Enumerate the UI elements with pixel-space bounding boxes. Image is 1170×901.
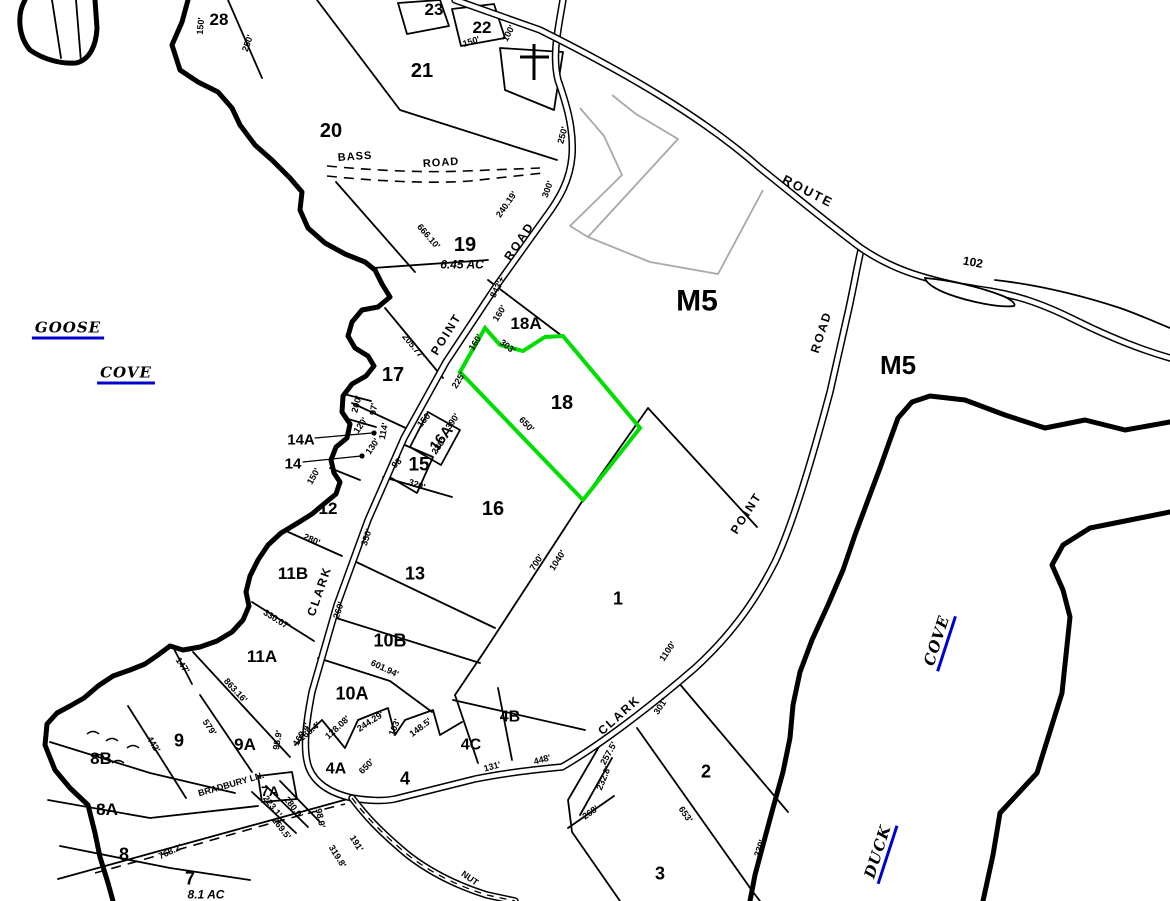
building-dot-14a	[371, 430, 376, 435]
measurement-label-120-: 120'	[351, 415, 369, 435]
road-label-bass: BASS	[337, 150, 372, 164]
measurement-label-147-: 147'	[174, 655, 192, 675]
parcel-label-18: 18	[551, 392, 573, 414]
parcel-boundary-lines	[48, 0, 788, 901]
measurement-label-150-: 150'	[461, 34, 480, 49]
measurement-label-250-: 250'	[240, 33, 255, 53]
parcel-18-highlight[interactable]	[460, 328, 640, 500]
measurement-label-863-16-: 863.16'	[222, 676, 250, 705]
measurement-label-97-: 97'	[368, 402, 380, 415]
parcel-label-4c: 4C	[461, 737, 482, 754]
parcel-label-14: 14	[285, 455, 302, 472]
measurement-label-330-07-: 330.07'	[262, 607, 292, 631]
acreage-label-6-45-ac: 6.45 AC	[440, 258, 484, 272]
measurement-label-1100-: 1100'	[657, 640, 677, 664]
measurement-label-98-9-: 98.9'	[314, 807, 328, 828]
parcel-label-23: 23	[425, 0, 444, 19]
road-label-road: ROAD	[808, 309, 835, 355]
tax-map-svg[interactable]: 28232221201918A181716A1514A14121611B1311…	[0, 0, 1170, 901]
measurement-label-148-5-: 148.5'	[407, 716, 433, 739]
parcel-label-28: 28	[210, 10, 229, 29]
parcel-label-2: 2	[701, 761, 711, 781]
measurement-label-250-: 250'	[555, 126, 569, 145]
measurement-label-442-: 442'	[145, 734, 163, 754]
measurement-label-240-19-: 240.19'	[494, 189, 519, 219]
measurement-label-843-: 843'±	[488, 275, 507, 299]
measurement-label-650-: 650'	[357, 757, 376, 776]
measurement-label-303-: 303'	[498, 337, 518, 355]
parcel-label-18a: 18A	[510, 314, 541, 333]
water-label-cove: COVE	[100, 364, 152, 382]
parcel-label-7: 7	[185, 868, 195, 888]
measurement-label-232-8-: 232.8'	[594, 765, 613, 792]
parcel-label-11b: 11B	[278, 564, 308, 583]
measurement-label-268-: 268'	[580, 803, 600, 821]
measurement-label-191-: 191'	[348, 833, 366, 853]
measurement-label-666-10-: 666.10'	[415, 222, 442, 251]
measurement-label-150-: 150'	[195, 17, 206, 35]
measurement-label-260-: 260'	[331, 600, 346, 619]
parcel-label-19: 19	[454, 234, 476, 256]
parcel-label-16: 16	[482, 498, 504, 520]
parcel-label-17: 17	[382, 364, 404, 386]
road-label-road: ROAD	[422, 156, 459, 171]
acreage-label-8-1-ac: 8.1 AC	[188, 888, 225, 901]
road-label-point: POINT	[728, 490, 765, 537]
parcel-label-m5: M5	[880, 350, 916, 380]
parcel-label-1: 1	[613, 588, 623, 608]
parcel-label-14a: 14A	[287, 431, 315, 448]
measurement-label-225-: 225'	[450, 370, 468, 390]
measurement-label-160-: 160'	[491, 303, 509, 323]
water-name-labels: GOOSECOVECOVEDUCK	[32, 319, 956, 884]
parcel-label-4: 4	[400, 768, 410, 788]
parcel-label-3: 3	[655, 863, 665, 883]
parcel-label-m5: M5	[676, 285, 718, 318]
parcel-label-9a: 9A	[234, 735, 256, 754]
parcel-number-labels: 28232221201918A181716A1514A14121611B1311…	[90, 0, 916, 888]
measurement-label-205-77-: 205.77'	[400, 332, 427, 361]
measurement-label-244-29-: 244.29'	[355, 709, 385, 734]
building-dot-14	[359, 453, 364, 458]
shoreline-duck-cove	[750, 396, 1170, 901]
parcel-label-9: 9	[174, 730, 184, 750]
measurement-label-330-: 330'	[752, 838, 767, 857]
measurement-label-223-1-: 223.1'	[261, 794, 284, 820]
measurement-label-448-: 448'	[533, 752, 552, 766]
measurement-label-768-2-: 768.2'	[157, 842, 184, 861]
parcel-label-15: 15	[408, 455, 430, 476]
parcel-label-10a: 10A	[335, 683, 368, 703]
parcel-label-8b: 8B	[90, 749, 112, 768]
parcel-label-10b: 10B	[373, 630, 406, 650]
tax-map-canvas[interactable]: 28232221201918A181716A1514A14121611B1311…	[0, 0, 1170, 901]
measurement-label-200-: 200'	[349, 395, 363, 414]
parcel-label-4a: 4A	[326, 761, 347, 778]
water-label-goose: GOOSE	[35, 319, 101, 337]
parcel-label-11a: 11A	[247, 647, 277, 666]
parcel-label-13: 13	[405, 563, 425, 583]
measurement-label-579-: 579'	[201, 717, 219, 737]
parcel-label-8a: 8A	[96, 800, 118, 819]
road-label-102: 102	[962, 254, 984, 271]
parcel-label-8: 8	[119, 844, 129, 864]
measurement-label-653-: 653'	[677, 804, 695, 824]
measurement-label-150-: 150'	[305, 466, 322, 486]
measurement-label-650-: 650'	[517, 415, 536, 434]
subdivision-gray-lines	[570, 95, 763, 274]
parcel-label-12: 12	[319, 499, 338, 518]
road-label-clark: CLARK	[304, 564, 334, 618]
parcel-label-20: 20	[320, 120, 342, 142]
parcel-label-4b: 4B	[500, 709, 520, 726]
measurement-label-114-: 114'	[377, 422, 390, 440]
parcel-label-21: 21	[411, 60, 433, 82]
measurement-label-390-: 390'	[443, 411, 461, 431]
measurement-label-319-8-: 319.8'	[327, 843, 349, 869]
road-nutter-south	[352, 798, 515, 901]
road-label-point: POINT	[428, 311, 465, 358]
measurement-label-300-: 300'	[540, 179, 555, 199]
measurement-label-100-: 100'	[500, 23, 517, 43]
